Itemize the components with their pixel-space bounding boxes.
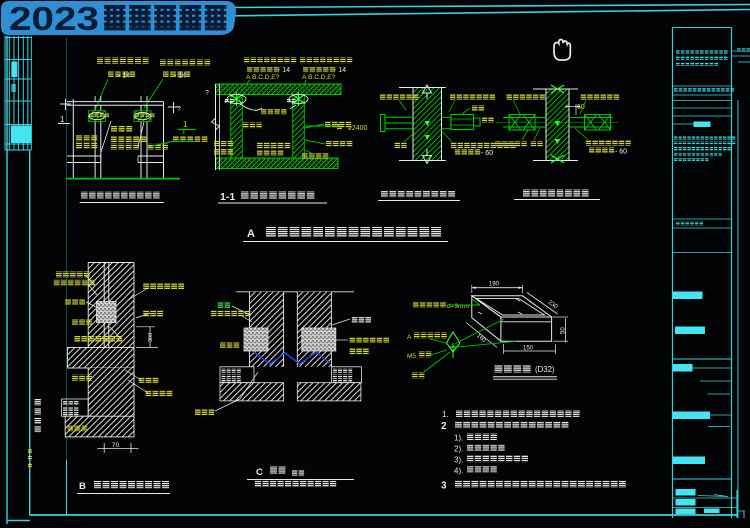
svg-text:1-1: 1-1	[220, 191, 235, 203]
svg-text:70: 70	[112, 442, 120, 449]
svg-text:M5: M5	[407, 353, 416, 360]
svg-text:1).: 1).	[454, 434, 463, 443]
svg-text:A: A	[247, 228, 255, 240]
svg-text:- 14: - 14	[174, 73, 186, 80]
svg-text:150: 150	[523, 346, 534, 352]
svg-text:3).: 3).	[454, 456, 463, 465]
svg-text:2023: 2023	[9, 0, 99, 37]
svg-text:A: A	[407, 334, 412, 341]
svg-text:300: 300	[148, 333, 154, 342]
svg-text:- 14: - 14	[278, 67, 290, 74]
svg-text:1: 1	[60, 115, 65, 124]
svg-text:1: 1	[183, 120, 188, 129]
svg-text:C: C	[256, 467, 263, 478]
svg-text:d=3mm: d=3mm	[447, 303, 469, 310]
svg-text:B: B	[79, 481, 86, 492]
svg-text:1.: 1.	[442, 410, 449, 419]
svg-text:- 60: - 60	[481, 150, 493, 157]
svg-text:2: 2	[441, 421, 447, 432]
svg-text:- 14: - 14	[334, 67, 346, 74]
svg-text:4).: 4).	[454, 467, 463, 476]
svg-text:- 14: - 14	[118, 73, 130, 80]
svg-text:190: 190	[489, 282, 500, 288]
svg-text:(D32): (D32)	[535, 365, 555, 374]
svg-text:3: 3	[441, 481, 447, 492]
svg-text:A.B.C.D.E?: A.B.C.D.E?	[246, 74, 280, 81]
svg-text:50: 50	[561, 327, 567, 334]
svg-text:≥2400: ≥2400	[348, 125, 368, 132]
svg-text:?: ?	[205, 90, 209, 97]
svg-text:?: ?	[177, 106, 181, 113]
svg-text:2).: 2).	[454, 445, 463, 454]
svg-text:A.B.C.D.E?: A.B.C.D.E?	[302, 74, 336, 81]
svg-text:- 60: - 60	[615, 149, 627, 156]
